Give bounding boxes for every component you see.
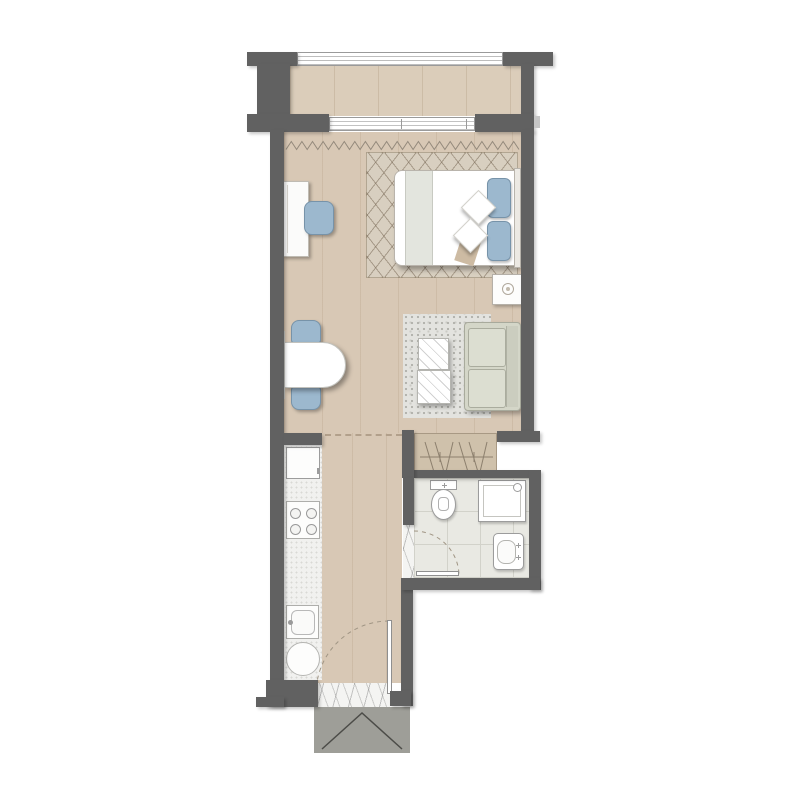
coffee-table	[417, 370, 451, 404]
entrance-landing-step	[314, 707, 410, 753]
bathroom-wall	[403, 478, 414, 525]
washer	[286, 642, 320, 676]
zone-divider-dashed-line	[325, 434, 402, 436]
sliding-door-divider	[401, 119, 402, 129]
wall	[247, 114, 329, 132]
burner-icon	[306, 524, 317, 535]
wall	[401, 590, 413, 706]
curtain-zigzag-icon	[286, 140, 519, 151]
balcony-floor	[290, 66, 521, 116]
balcony-railing	[297, 52, 503, 66]
sofa-cushion	[468, 328, 506, 367]
door-jamb	[390, 691, 411, 706]
nightstand	[492, 274, 522, 305]
wall	[497, 431, 540, 442]
wall-left	[270, 130, 284, 706]
bathroom-wall	[529, 470, 541, 590]
cooktop	[286, 501, 320, 539]
bed-foot-blanket	[405, 171, 433, 265]
shower-head-icon	[513, 483, 522, 492]
sofa-cushion	[468, 369, 506, 408]
wall-right	[521, 130, 534, 433]
wardrobe-wall	[402, 430, 414, 478]
burner-icon	[290, 508, 301, 519]
entry-door-swing-arc	[316, 621, 390, 695]
fridge-handle	[317, 468, 320, 474]
desk-chair	[304, 201, 334, 235]
landing-chevron-icon	[314, 707, 410, 753]
flush-icon	[442, 483, 447, 488]
sliding-glass-door	[329, 117, 475, 131]
tap-icon	[516, 555, 521, 560]
dining-table	[283, 342, 346, 388]
dining-chair	[291, 386, 321, 410]
sofa-backrest	[506, 326, 518, 407]
fridge	[286, 447, 320, 479]
wall	[257, 64, 290, 116]
bathroom-door-leaf	[416, 571, 459, 576]
sofa	[464, 322, 521, 411]
lamp-dot	[506, 287, 510, 291]
bed-headboard	[514, 168, 521, 268]
bathroom-sink	[493, 533, 524, 570]
shower	[478, 480, 526, 522]
tap-icon	[516, 543, 521, 548]
wall	[256, 697, 284, 707]
sink-basin	[291, 610, 315, 635]
burner-icon	[306, 508, 317, 519]
kitchen-wall-stub	[284, 433, 322, 445]
entry-door-leaf	[387, 620, 392, 694]
kitchen-sink	[286, 605, 319, 639]
coffee-table	[418, 338, 449, 370]
sink-basin	[497, 540, 516, 564]
floor-plan	[0, 0, 800, 800]
burner-icon	[290, 524, 301, 535]
bathroom-wall	[401, 578, 540, 590]
toilet-bowl-inner	[438, 497, 449, 511]
sliding-door-divider	[466, 119, 467, 129]
wall-connector-tab	[534, 116, 540, 128]
bathroom-door-threshold	[403, 525, 414, 578]
pillow	[487, 221, 511, 261]
desk-edge-line	[287, 185, 288, 253]
bathroom-wall	[414, 470, 529, 478]
wall	[521, 64, 534, 116]
faucet-icon	[288, 620, 293, 625]
dining-chair	[291, 320, 321, 344]
toilet	[431, 489, 456, 520]
